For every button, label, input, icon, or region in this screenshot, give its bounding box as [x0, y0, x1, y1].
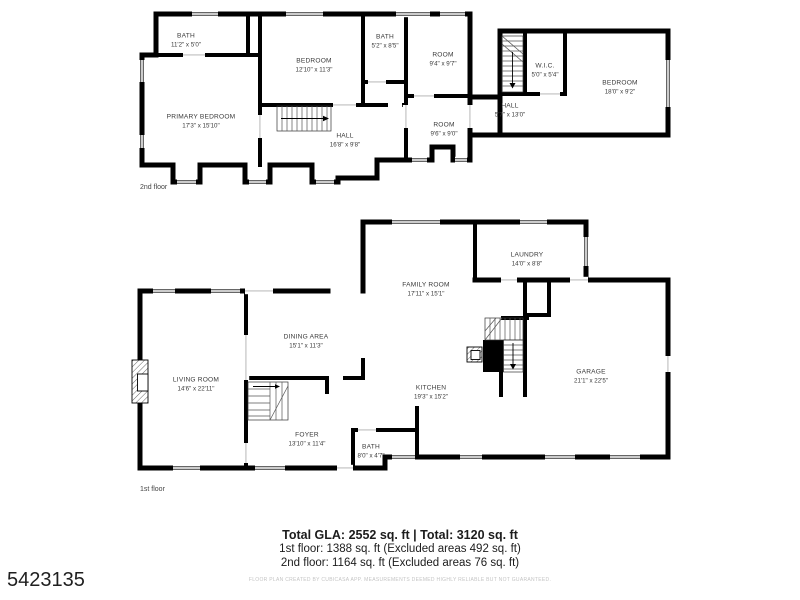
room-label: BATH 5'2" x 8'5": [371, 33, 398, 52]
windows: [153, 219, 640, 471]
stairs-foyer: [248, 382, 288, 420]
total-gla-line: Total GLA: 2552 sq. ft | Total: 3120 sq.…: [0, 528, 800, 542]
second-floor-caption: 2nd floor: [140, 184, 167, 191]
stairs-wing: [502, 36, 523, 92]
room-label: BATH 8'0" x 4'7": [357, 443, 384, 462]
chimney-block: [467, 340, 504, 372]
room-label: FOYER 13'10" x 11'4": [289, 431, 326, 450]
first-floor-area-line: 1st floor: 1388 sq. ft (Excluded areas 4…: [0, 542, 800, 556]
room-label: GARAGE 21'1" x 22'5": [574, 368, 608, 387]
listing-id: 5423135: [7, 569, 85, 592]
first-floor-drawing: [130, 216, 678, 476]
disclaimer-text: FLOOR PLAN CREATED BY CUBICASA APP. MEAS…: [0, 577, 800, 583]
room-label: HALL 5'7" x 13'0": [495, 102, 526, 121]
second-floor-drawing: [138, 10, 674, 196]
room-label: BEDROOM 12'10" x 11'3": [296, 57, 333, 76]
room-label: DINING AREA 15'1" x 11'3": [284, 333, 329, 352]
second-floor-area-line: 2nd floor: 1164 sq. ft (Excluded areas 7…: [0, 556, 800, 570]
fireplace-living-room: [132, 360, 148, 403]
room-label: HALL 16'8" x 9'8": [330, 132, 361, 151]
room-label: PRIMARY BEDROOM 17'3" x 15'10": [167, 113, 236, 132]
floor-plan-page: BATH 11'2" x 5'0" BEDROOM 12'10" x 11'3"…: [0, 0, 800, 600]
room-label: W.I.C. 5'0" x 5'4": [531, 62, 558, 81]
room-label: BATH 11'2" x 5'0": [171, 32, 201, 51]
room-label: FAMILY ROOM 17'11" x 15'1": [402, 281, 449, 300]
second-floor-plan: BATH 11'2" x 5'0" BEDROOM 12'10" x 11'3"…: [138, 10, 674, 196]
area-summary: Total GLA: 2552 sq. ft | Total: 3120 sq.…: [0, 528, 800, 583]
room-label: ROOM 9'4" x 9'7": [429, 51, 456, 70]
room-label: BEDROOM 18'0" x 9'2": [602, 79, 637, 98]
room-label: ROOM 9'6" x 9'0": [430, 121, 457, 140]
room-label: LAUNDRY 14'0" x 8'8": [511, 251, 544, 270]
room-label: LIVING ROOM 14'6" x 22'11": [173, 376, 219, 395]
first-floor-plan: FAMILY ROOM 17'11" x 15'1" LAUNDRY 14'0"…: [130, 216, 678, 476]
first-floor-caption: 1st floor: [140, 486, 165, 493]
stairs-upper-hall: [277, 106, 331, 131]
room-label: KITCHEN 19'3" x 15'2": [414, 384, 448, 403]
